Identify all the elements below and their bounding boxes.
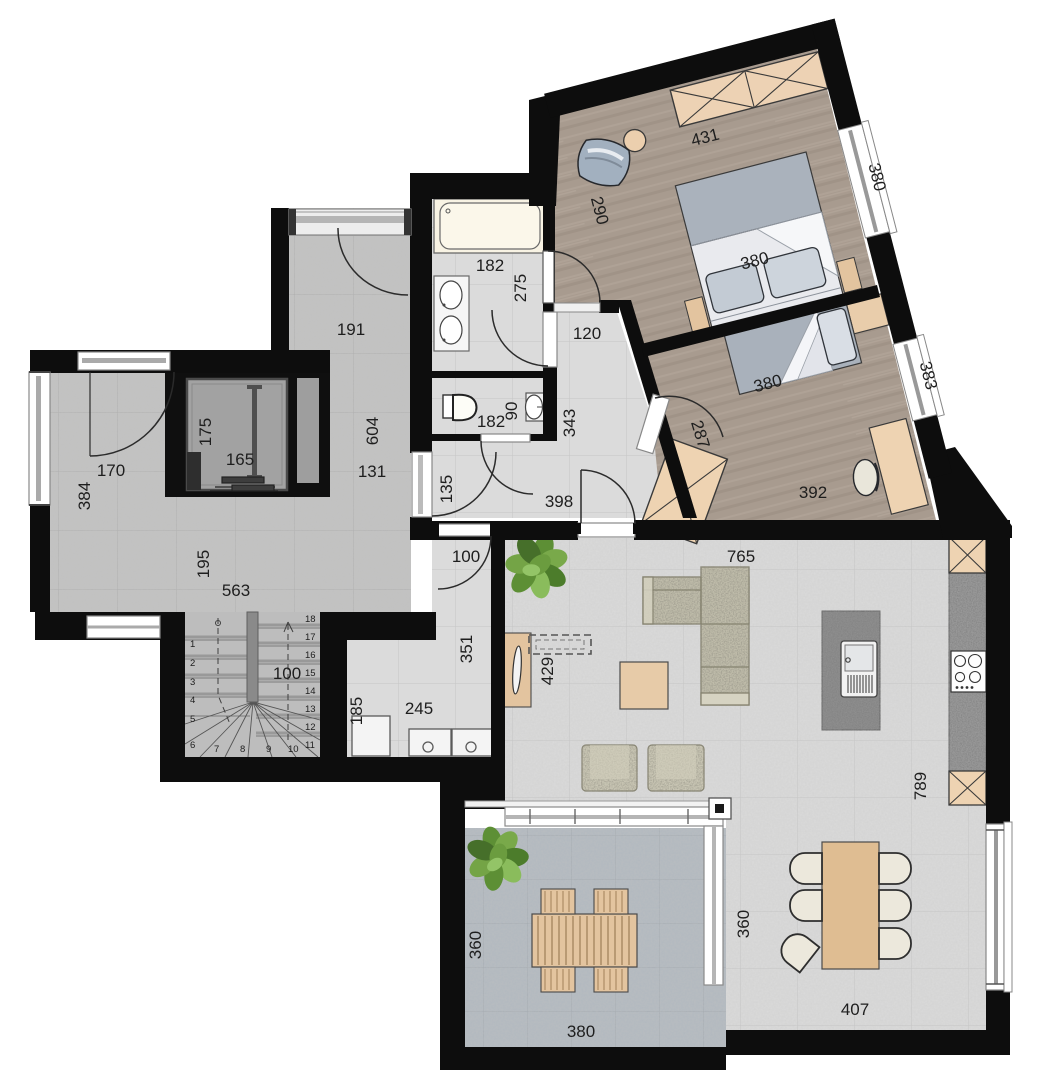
svg-text:2: 2 bbox=[190, 658, 195, 669]
svg-text:8: 8 bbox=[240, 744, 245, 755]
svg-text:100: 100 bbox=[273, 664, 301, 683]
svg-text:185: 185 bbox=[347, 697, 366, 725]
svg-text:407: 407 bbox=[841, 1000, 869, 1019]
svg-text:6: 6 bbox=[190, 740, 195, 751]
svg-text:5: 5 bbox=[190, 714, 195, 725]
svg-text:90: 90 bbox=[502, 402, 521, 421]
svg-text:351: 351 bbox=[457, 635, 476, 663]
svg-text:9: 9 bbox=[266, 744, 271, 755]
svg-text:195: 195 bbox=[194, 550, 213, 578]
svg-text:10: 10 bbox=[288, 744, 299, 755]
svg-text:175: 175 bbox=[196, 418, 215, 446]
svg-text:18: 18 bbox=[305, 614, 316, 625]
svg-text:7: 7 bbox=[214, 744, 219, 755]
svg-text:604: 604 bbox=[363, 417, 382, 445]
svg-text:131: 131 bbox=[358, 462, 386, 481]
svg-text:182: 182 bbox=[476, 256, 504, 275]
svg-text:4: 4 bbox=[190, 695, 195, 706]
svg-text:1: 1 bbox=[190, 639, 195, 650]
svg-text:245: 245 bbox=[405, 699, 433, 718]
svg-text:17: 17 bbox=[305, 632, 316, 643]
svg-text:3: 3 bbox=[190, 677, 195, 688]
svg-text:100: 100 bbox=[452, 547, 480, 566]
svg-text:135: 135 bbox=[437, 475, 456, 503]
svg-text:275: 275 bbox=[511, 274, 530, 302]
svg-text:765: 765 bbox=[727, 547, 755, 566]
svg-text:380: 380 bbox=[567, 1022, 595, 1041]
svg-text:120: 120 bbox=[573, 324, 601, 343]
svg-text:15: 15 bbox=[305, 668, 316, 679]
svg-text:182: 182 bbox=[477, 412, 505, 431]
svg-text:11: 11 bbox=[305, 740, 315, 751]
svg-text:191: 191 bbox=[337, 320, 365, 339]
svg-text:360: 360 bbox=[734, 910, 753, 938]
svg-text:12: 12 bbox=[305, 722, 316, 733]
svg-text:16: 16 bbox=[305, 650, 316, 661]
svg-text:398: 398 bbox=[545, 492, 573, 511]
svg-text:14: 14 bbox=[305, 686, 316, 697]
svg-text:392: 392 bbox=[799, 483, 827, 502]
svg-text:13: 13 bbox=[305, 704, 316, 715]
svg-text:343: 343 bbox=[560, 409, 579, 437]
svg-text:165: 165 bbox=[226, 450, 254, 469]
svg-text:563: 563 bbox=[222, 581, 250, 600]
svg-text:429: 429 bbox=[538, 657, 557, 685]
svg-text:170: 170 bbox=[97, 461, 125, 480]
svg-text:384: 384 bbox=[75, 482, 94, 510]
svg-text:789: 789 bbox=[911, 772, 930, 800]
svg-text:360: 360 bbox=[466, 931, 485, 959]
